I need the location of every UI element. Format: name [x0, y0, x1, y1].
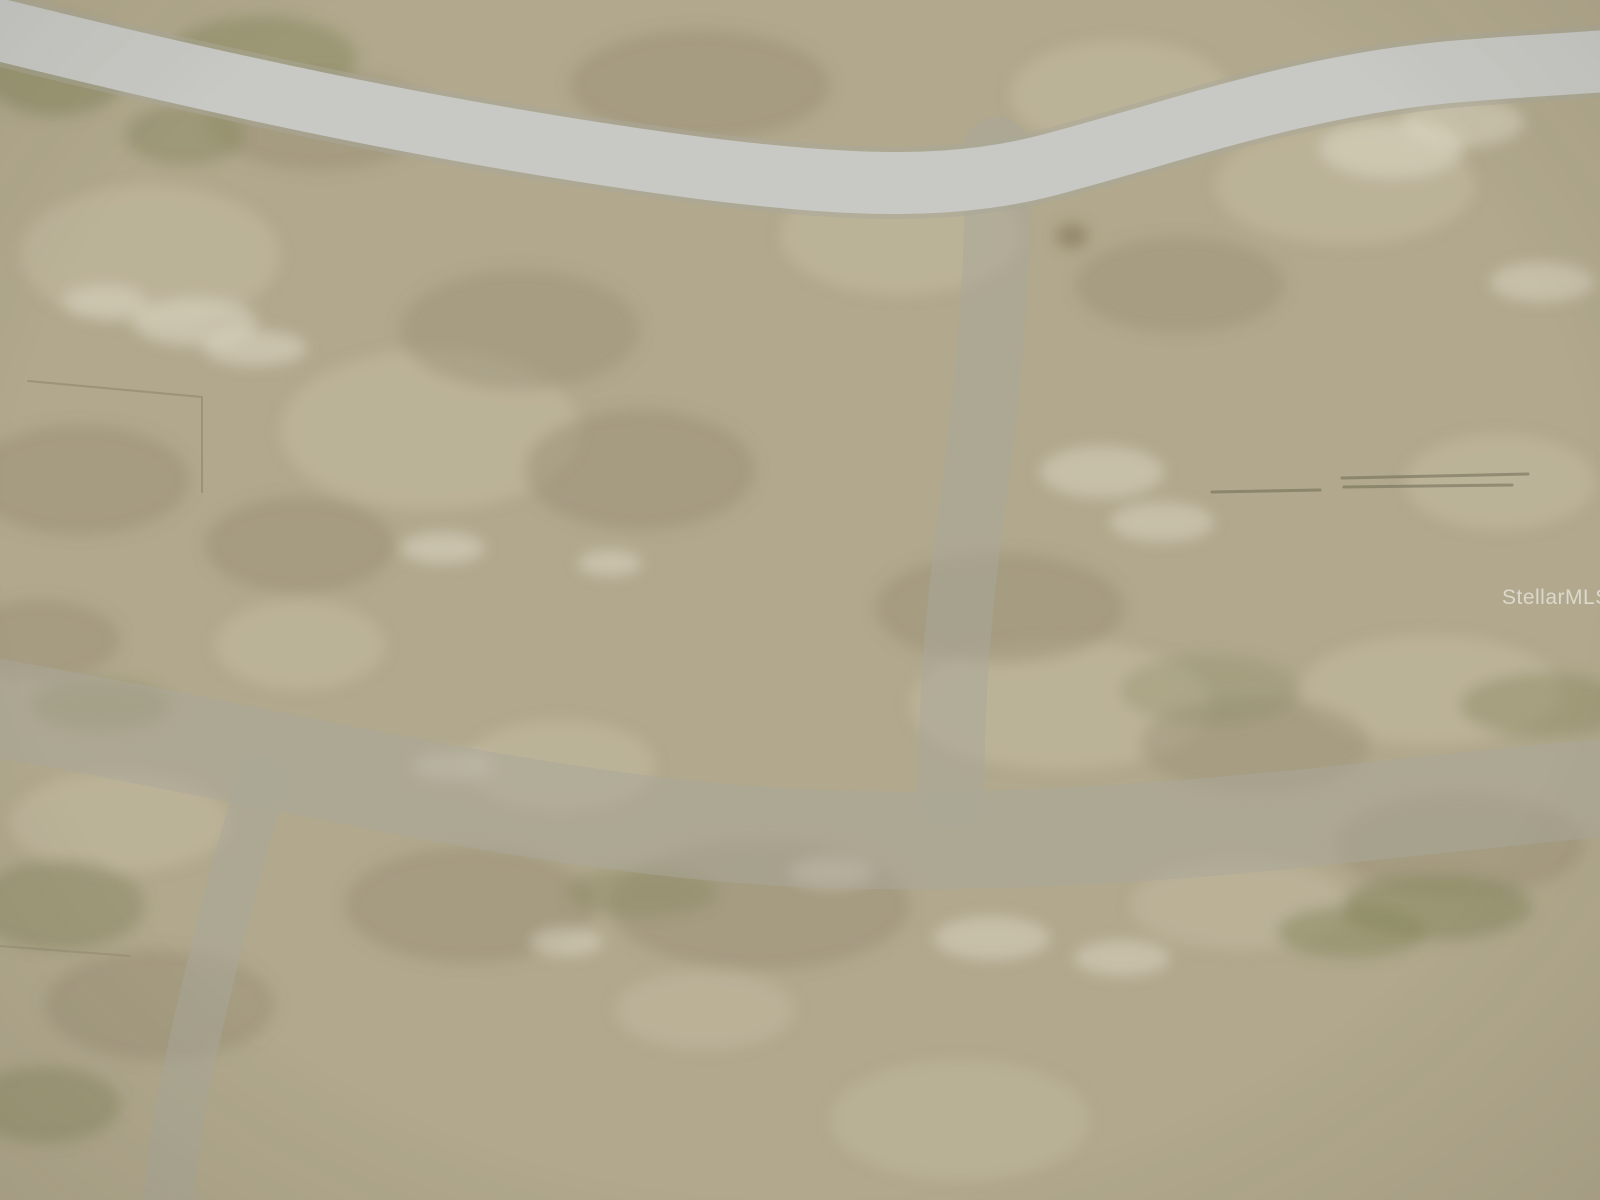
aerial-photo: StellarMLS [0, 0, 1600, 1200]
aerial-scene-svg [0, 0, 1600, 1200]
